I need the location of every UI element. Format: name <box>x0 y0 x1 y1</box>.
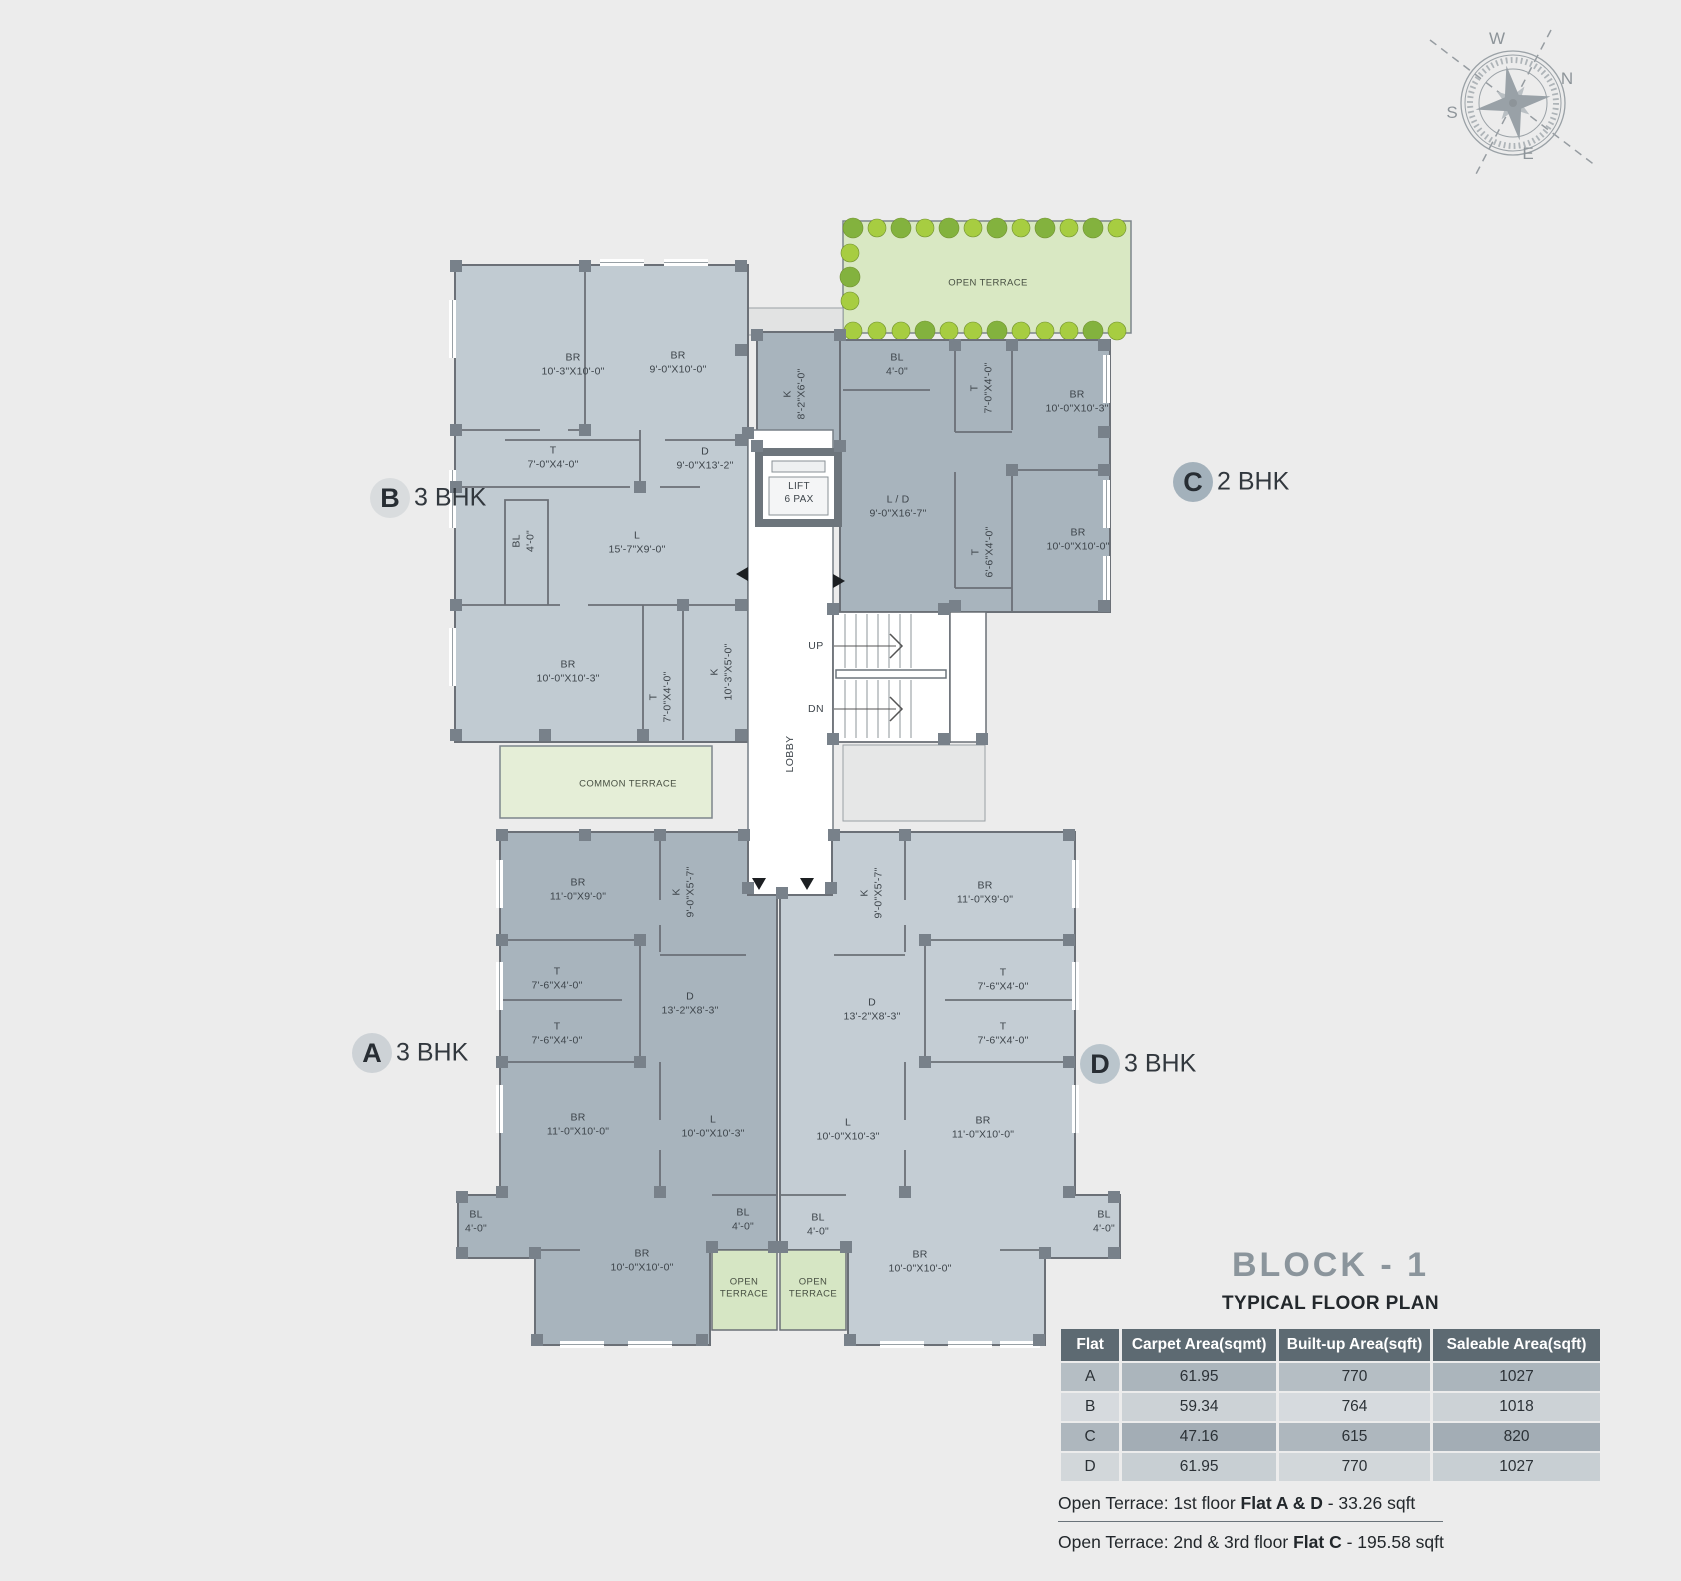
flat-b-region <box>455 265 748 742</box>
room-label-c-t2: T6'-6"X4'-0" <box>969 526 996 577</box>
room-label-a-br3: BR10'-0"X10'-0" <box>610 1247 673 1274</box>
compass-e: E <box>1522 144 1533 163</box>
compass-n: N <box>1561 69 1573 88</box>
cell-builtup: 615 <box>1279 1423 1430 1451</box>
block-title: BLOCK - 1 <box>1058 1246 1603 1285</box>
room-label-b-bl: BL4'-0" <box>510 530 537 552</box>
room-label-b-d: D9'-0"X13'-2" <box>676 445 733 472</box>
flat-type-a: 3 BHK <box>396 1039 468 1068</box>
room-label-d-k: K9'-0"X5'-7" <box>858 867 885 918</box>
stairs-dn-label: DN <box>808 703 824 715</box>
room-label-a-t1: T7'-6"X4'-0" <box>531 965 582 992</box>
common-terrace-label: COMMON TERRACE <box>579 779 677 790</box>
cell-saleable: 820 <box>1433 1423 1600 1451</box>
compass-rose: W N E S <box>1430 29 1596 176</box>
room-label-b-br3: BR10'-0"X10'-3" <box>536 658 599 685</box>
room-label-c-bl: BL4'-0" <box>886 351 908 378</box>
open-terrace-note-2: Open Terrace: 2nd & 3rd floor Flat C - 1… <box>1058 1532 1603 1553</box>
cell-flat: B <box>1061 1393 1119 1421</box>
cell-carpet: 61.95 <box>1122 1363 1276 1391</box>
flat-badge-c: C <box>1173 462 1213 502</box>
cell-flat: C <box>1061 1423 1119 1451</box>
room-label-d-t2: T7'-6"X4'-0" <box>977 1020 1028 1047</box>
open-terrace-top-label: OPEN TERRACE <box>948 278 1028 289</box>
cell-flat: A <box>1061 1363 1119 1391</box>
compass-s: S <box>1446 103 1457 122</box>
note-divider <box>1058 1521 1443 1522</box>
flat-type-d: 3 BHK <box>1124 1050 1196 1079</box>
table-row-b: B 59.34 764 1018 <box>1061 1393 1600 1421</box>
area-table: Flat Carpet Area(sqmt) Built-up Area(sqf… <box>1058 1327 1603 1483</box>
open-terrace-d-label: OPENTERRACE <box>789 1277 837 1302</box>
cell-carpet: 61.95 <box>1122 1453 1276 1481</box>
lobby-label: LOBBY <box>784 735 796 772</box>
room-label-d-t1: T7'-6"X4'-0" <box>977 966 1028 993</box>
table-row-a: A 61.95 770 1027 <box>1061 1363 1600 1391</box>
flat-badge-a: A <box>352 1033 392 1073</box>
cell-saleable: 1027 <box>1433 1453 1600 1481</box>
open-terrace-note-1: Open Terrace: 1st floor Flat A & D - 33.… <box>1058 1493 1603 1514</box>
room-label-a-bl2: BL4'-0" <box>465 1208 487 1235</box>
cell-saleable: 1027 <box>1433 1363 1600 1391</box>
column-header-builtup: Built-up Area(sqft) <box>1279 1329 1430 1361</box>
room-label-b-t1: T7'-0"X4'-0" <box>527 444 578 471</box>
ledge-mid <box>843 745 985 821</box>
flat-type-b: 3 BHK <box>414 484 486 513</box>
compass-w: W <box>1489 29 1505 48</box>
room-label-a-d: D13'-2"X8'-3" <box>661 990 718 1017</box>
flat-badge-d: D <box>1080 1044 1120 1084</box>
room-label-c-t1: T7'-0"X4'-0" <box>968 362 995 413</box>
room-label-b-l: L15'-7"X9'-0" <box>608 529 665 556</box>
floor-plan-page: W N E S BR10'-3"X10'-0" BR9'-0"X10'-0" T… <box>0 0 1681 1581</box>
room-label-a-l: L10'-0"X10'-3" <box>681 1113 744 1140</box>
room-label-b-br1: BR10'-3"X10'-0" <box>541 351 604 378</box>
room-label-a-t2: T7'-6"X4'-0" <box>531 1020 582 1047</box>
cell-carpet: 59.34 <box>1122 1393 1276 1421</box>
table-row-d: D 61.95 770 1027 <box>1061 1453 1600 1481</box>
room-label-d-bl: BL4'-0" <box>807 1211 829 1238</box>
cell-builtup: 764 <box>1279 1393 1430 1421</box>
lift-label: LIFT6 PAX <box>784 480 813 506</box>
room-label-c-ld: L / D9'-0"X16'-7" <box>869 493 926 520</box>
room-label-c-k: K8'-2"X6'-0" <box>781 368 808 419</box>
cell-builtup: 770 <box>1279 1453 1430 1481</box>
stairs-up-label: UP <box>808 640 823 652</box>
cell-builtup: 770 <box>1279 1363 1430 1391</box>
room-label-c-br1: BR10'-0"X10'-3" <box>1045 388 1108 415</box>
room-label-b-t2: T7'-0"X4'-0" <box>647 671 674 722</box>
flat-type-c: 2 BHK <box>1217 468 1289 497</box>
room-label-a-k: K9'-0"X5'-7" <box>670 866 697 917</box>
room-label-a-br2: BR11'-0"X10'-0" <box>547 1111 609 1138</box>
open-terrace-a-label: OPENTERRACE <box>720 1277 768 1302</box>
cell-saleable: 1018 <box>1433 1393 1600 1421</box>
column-header-saleable: Saleable Area(sqft) <box>1433 1329 1600 1361</box>
column-header-flat: Flat <box>1061 1329 1119 1361</box>
staircase <box>833 612 986 742</box>
plan-subtitle: TYPICAL FLOOR PLAN <box>1058 1293 1603 1315</box>
room-label-d-br1: BR11'-0"X9'-0" <box>957 879 1013 906</box>
room-label-d-bl2: BL4'-0" <box>1093 1208 1115 1235</box>
table-row-c: C 47.16 615 820 <box>1061 1423 1600 1451</box>
room-label-b-k: K10'-3"X5'-0" <box>708 643 735 700</box>
room-label-d-d: D13'-2"X8'-3" <box>843 996 900 1023</box>
room-label-b-br2: BR9'-0"X10'-0" <box>649 349 706 376</box>
column-header-carpet: Carpet Area(sqmt) <box>1122 1329 1276 1361</box>
room-label-d-br2: BR11'-0"X10'-0" <box>952 1114 1014 1141</box>
flat-badge-b: B <box>370 478 410 518</box>
area-table-section: BLOCK - 1 TYPICAL FLOOR PLAN Flat Carpet… <box>1058 1246 1603 1553</box>
room-label-a-br1: BR11'-0"X9'-0" <box>550 876 606 903</box>
room-label-d-l: L10'-0"X10'-3" <box>816 1116 879 1143</box>
room-label-c-br2: BR10'-0"X10'-0" <box>1046 526 1109 553</box>
table-header-row: Flat Carpet Area(sqmt) Built-up Area(sqf… <box>1061 1329 1600 1361</box>
cell-carpet: 47.16 <box>1122 1423 1276 1451</box>
room-label-d-br3: BR10'-0"X10'-0" <box>888 1248 951 1275</box>
cell-flat: D <box>1061 1453 1119 1481</box>
room-label-a-bl: BL4'-0" <box>732 1206 754 1233</box>
